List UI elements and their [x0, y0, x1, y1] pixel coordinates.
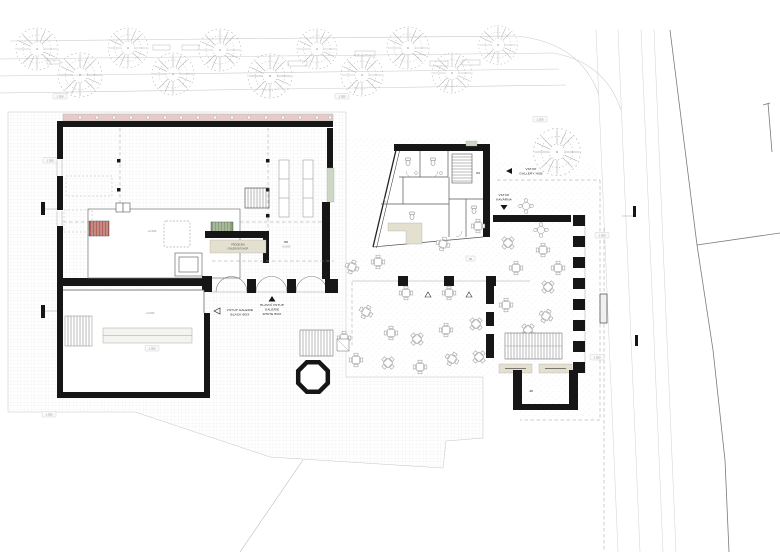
entry-glazing	[466, 141, 477, 146]
level-label: 1.350	[149, 347, 156, 351]
north-wall	[63, 121, 333, 127]
room-number: 04	[476, 171, 480, 175]
stair-icon	[452, 154, 472, 183]
street	[0, 26, 621, 110]
level-label: 1.350	[46, 413, 53, 417]
shop-name: PRODEJNA	[231, 244, 245, 247]
stair-icon	[65, 316, 92, 346]
stair-icon	[505, 333, 562, 359]
level-label: 1.350	[57, 95, 64, 99]
level-label: 1.350	[339, 95, 346, 99]
entrance-label: KAVÁRNA	[496, 198, 512, 202]
east-wall	[483, 144, 490, 237]
entrance-label: GALERIE	[265, 308, 279, 312]
east-glazing	[327, 168, 334, 202]
toilet-icon	[431, 158, 435, 166]
north-wall	[493, 215, 571, 222]
road	[596, 30, 780, 552]
sink-icon	[440, 172, 443, 175]
room-number: 10	[529, 389, 533, 393]
site-plan-canvas: +0,000 PRODEJNA GALERIJNÍ SHOP 03 +0,000	[0, 0, 780, 552]
entrance-label: BLACK BOX	[231, 313, 250, 317]
tree-icon	[108, 28, 148, 68]
stair-icon	[300, 330, 333, 356]
curb-ticks	[622, 206, 638, 346]
octagon-kiosk	[298, 362, 328, 392]
level-label: 1.350	[47, 159, 54, 163]
entrance-label: WHITE BOX	[263, 312, 282, 316]
loading-room: +0,000	[57, 285, 210, 398]
gate	[600, 294, 607, 323]
shop-floor-strip	[210, 240, 266, 253]
level-label: 1.350	[594, 356, 601, 360]
east-wall	[327, 128, 333, 168]
toilet-icon	[410, 212, 414, 220]
west-wall	[57, 121, 63, 159]
entrance-label: VSTUP	[498, 193, 509, 197]
sink-icon	[415, 172, 418, 175]
hall-south-wall	[63, 278, 210, 286]
tree-icon	[387, 27, 429, 69]
toilet-icon	[406, 158, 410, 166]
level-label: +0,000	[282, 245, 291, 249]
floor-plan-page: +0,000 PRODEJNA GALERIJNÍ SHOP 03 +0,000	[0, 0, 780, 552]
tree-icon	[248, 54, 292, 98]
tree-icon	[16, 28, 58, 70]
shop-name: GALERIJNÍ SHOP	[228, 248, 249, 251]
level-label: +0,000	[148, 229, 157, 233]
level-label: 1.350	[599, 234, 606, 238]
column	[486, 276, 496, 286]
elevator-icon	[175, 253, 202, 276]
room-number: 06	[469, 257, 473, 261]
entrance-label: HLAVNÍ VSTUP	[260, 303, 284, 307]
room-number: 03	[284, 240, 288, 244]
entrance-label: VSTUP	[525, 167, 536, 171]
tree-icon	[199, 29, 241, 71]
tree-icon	[58, 53, 102, 97]
tree-icon	[341, 54, 383, 96]
tree-icon	[297, 29, 337, 69]
level-label: 1.350	[537, 118, 544, 122]
column	[444, 276, 454, 286]
tree-icon	[479, 26, 518, 65]
entrance-label: GALLERY HUB	[519, 172, 542, 176]
entrance-label: VSTUP GALERIE	[227, 308, 253, 312]
column	[398, 276, 408, 286]
tree-icon	[152, 53, 194, 95]
level-label: +0,000	[146, 311, 155, 315]
site-boundary	[240, 460, 303, 552]
toilet-icon	[472, 206, 476, 214]
